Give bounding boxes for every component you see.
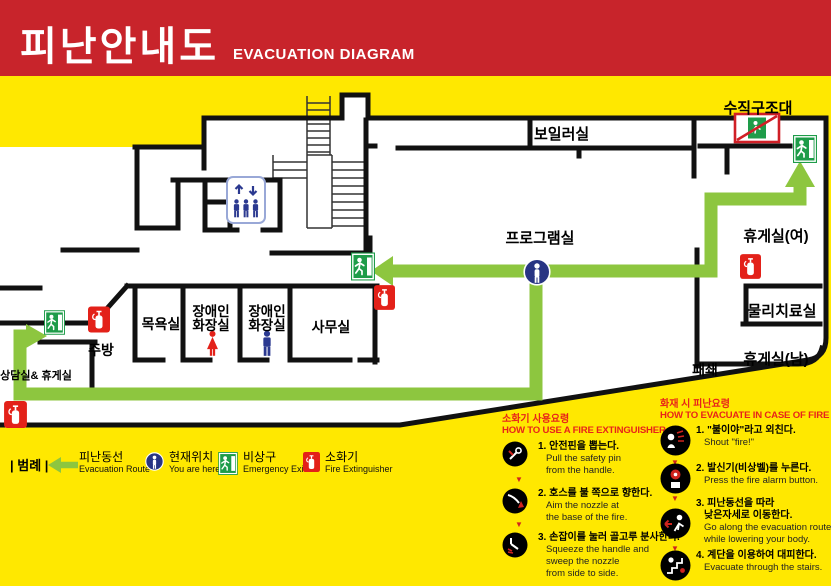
step-text-en: Pull the safety pin: [538, 453, 621, 465]
legend-item-you-are-here: 현재위치 You are here: [169, 451, 220, 474]
step-text-ko: 4. 계단을 이용하여 대피한다.: [696, 550, 822, 562]
step-text-en: Aim the nozzle at: [538, 500, 652, 512]
step-text-en: Squeeze the handle and: [538, 544, 680, 556]
squeeze-handle-icon: [502, 532, 528, 558]
label-kitchen: 주방: [88, 342, 114, 358]
move-low-icon: [660, 508, 691, 539]
evacuation-step-4: 4. 계단을 이용하여 대피한다. Evacuate through the s…: [660, 550, 822, 574]
legend-label-en: Emergency Exit: [243, 464, 306, 474]
extinguisher-step-3: 3. 손잡이를 눌러 골고루 분사한다. Squeeze the handle …: [502, 532, 680, 580]
evacuation-route-arrow-icon: [48, 457, 78, 473]
evacuation-step-2: 2. 발신기(비상벨)를 누른다. Press the fire alarm b…: [660, 463, 818, 487]
step-text-ko: 2. 발신기(비상벨)를 누른다.: [696, 463, 818, 475]
legend-label-ko: 현재위치: [169, 451, 220, 464]
emergency-exit-icon-center: [351, 253, 375, 281]
step-text-ko: 1. "불이야"라고 외친다.: [696, 425, 796, 437]
emergency-exit-icon: [218, 452, 238, 475]
fire-extinguisher-icon-right: [740, 254, 761, 279]
step-text-en: Evacuate through the stairs.: [696, 562, 822, 574]
label-counseling-room: 상담실& 휴게실: [0, 368, 72, 382]
legend-title: | 범례 |: [10, 455, 48, 474]
fire-extinguisher-icon: [303, 451, 320, 473]
legend: | 범례 | 피난동선 Evacuation Route 현재위치 You ar…: [0, 449, 460, 483]
aim-nozzle-icon: [502, 488, 528, 514]
label-closed-area: 패쇄: [692, 362, 718, 378]
step-text-en: from side to side.: [538, 568, 680, 580]
evacuation-diagram-screen: 피난안내도 EVACUATION DIAGRAM: [0, 0, 831, 586]
step-text-en: while lowering your body.: [696, 534, 831, 546]
evacuation-guide: 화재 시 피난요령 HOW TO EVACUATE IN CASE OF FIR…: [660, 399, 831, 586]
guide-title-en: HOW TO USE A FIRE EXTINGUISHER: [502, 425, 674, 436]
down-arrow-icon: ▼: [515, 521, 523, 529]
fire-alarm-icon: [660, 463, 691, 494]
emergency-exit-icon-top-right: [793, 135, 817, 163]
fire-extinguisher-guide: 소화기 사용요령 HOW TO USE A FIRE EXTINGUISHER …: [502, 414, 674, 584]
step-text-ko: 3. 피난동선을 따라: [696, 498, 831, 510]
label-lounge-women: 휴게실(여): [743, 228, 808, 245]
label-program-room: 프로그램실: [505, 229, 574, 247]
extinguisher-step-1: 1. 안전핀을 뽑는다. Pull the safety pin from th…: [502, 441, 621, 477]
elevator-icon: [227, 177, 265, 223]
guide-title-en: HOW TO EVACUATE IN CASE OF FIRE: [660, 410, 831, 421]
legend-item-emergency-exit: 비상구 Emergency Exit: [243, 451, 306, 474]
legend-label-en: Evacuation Route: [79, 464, 150, 474]
fire-extinguisher-icon-bottom-left: [4, 401, 27, 428]
fire-extinguisher-icon-center: [374, 285, 395, 310]
step-text-ko: 1. 안전핀을 뽑는다.: [538, 441, 621, 453]
use-stairs-icon: [660, 550, 691, 581]
label-accessible-toilet-2-line1: 장애인: [248, 303, 285, 319]
legend-label-ko: 소화기: [325, 451, 393, 464]
pull-pin-icon: [502, 441, 528, 467]
step-text-en: from the handle.: [538, 465, 621, 477]
label-bath-room: 목욕실: [142, 316, 181, 332]
label-physio-room: 물리치료실: [747, 303, 816, 320]
legend-item-fire-extinguisher: 소화기 Fire Extinguisher: [325, 451, 393, 474]
label-accessible-toilet-1-line2: 화장실: [192, 317, 229, 333]
vertical-rescue-icon: [735, 114, 779, 142]
legend-item-evacuation-route: 피난동선 Evacuation Route: [79, 451, 150, 474]
legend-label-ko: 비상구: [243, 451, 306, 464]
legend-label-en: You are here: [169, 464, 220, 474]
guide-title-ko: 소화기 사용요령: [502, 414, 674, 425]
label-accessible-toilet-1-line1: 장애인: [192, 303, 229, 319]
step-text-en: Press the fire alarm button.: [696, 475, 818, 487]
step-text-ko: 낮은자세로 이동한다.: [696, 510, 831, 522]
label-lounge-men: 휴게실(남): [743, 351, 808, 368]
step-text-en: Go along the evacuation route: [696, 522, 831, 534]
step-text-en: sweep the nozzle: [538, 556, 680, 568]
you-are-here-icon: [524, 259, 550, 285]
label-vertical-rescue: 수직구조대: [723, 99, 792, 117]
label-accessible-toilet-2-line2: 화장실: [248, 317, 285, 333]
evacuation-step-1: 1. "불이야"라고 외친다. Shout "fire!": [660, 425, 796, 449]
shout-fire-icon: [660, 425, 691, 456]
you-are-here-icon: [145, 452, 164, 471]
step-text-ko: 3. 손잡이를 눌러 골고루 분사한다.: [538, 532, 680, 544]
fire-extinguisher-icon-kitchen: [88, 307, 110, 333]
extinguisher-step-2: 2. 호스를 불 쪽으로 향한다. Aim the nozzle at the …: [502, 488, 652, 524]
legend-label-ko: 피난동선: [79, 451, 150, 464]
evacuation-step-3: 3. 피난동선을 따라 낮은자세로 이동한다. Go along the eva…: [660, 498, 831, 546]
label-office: 사무실: [312, 319, 351, 335]
legend-label-en: Fire Extinguisher: [325, 464, 393, 474]
guide-title-ko: 화재 시 피난요령: [660, 399, 831, 410]
label-boiler-room: 보일러실: [534, 126, 589, 143]
down-arrow-icon: ▼: [515, 476, 523, 484]
step-text-en: Shout "fire!": [696, 437, 796, 449]
step-text-en: the base of the fire.: [538, 512, 652, 524]
step-text-ko: 2. 호스를 불 쪽으로 향한다.: [538, 488, 652, 500]
emergency-exit-icon-left: [44, 310, 65, 335]
